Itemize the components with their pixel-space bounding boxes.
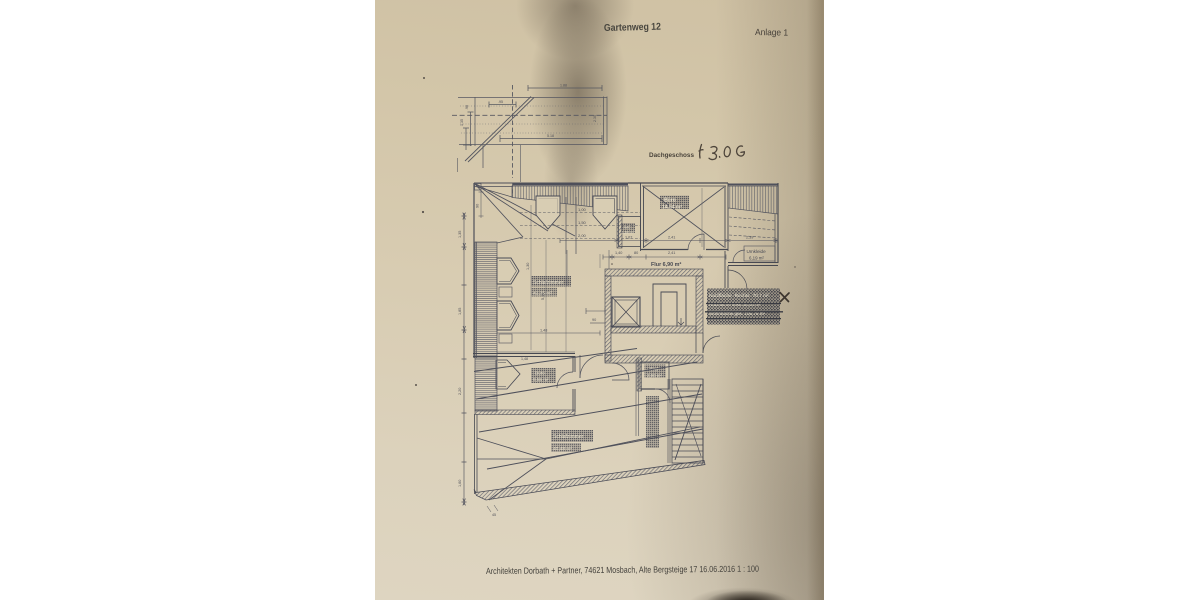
svg-text:Umkleide: Umkleide <box>747 249 767 254</box>
svg-text:5,11: 5,11 <box>541 293 545 300</box>
svg-text:Gartenweg 12: Gartenweg 12 <box>604 22 662 34</box>
svg-text:40,48 m²: 40,48 m² <box>553 446 572 452</box>
svg-text:Nutzfläche links 35,05 m²: Nutzfläche links 35,05 m² <box>709 302 761 307</box>
svg-text:.98: .98 <box>465 105 469 110</box>
svg-text:1.35: 1.35 <box>460 119 464 126</box>
svg-text:1,07: 1,07 <box>625 236 632 240</box>
svg-text:Büro: Büro <box>535 371 545 376</box>
svg-text:2,41: 2,41 <box>668 251 675 255</box>
svg-text:1,48: 1,48 <box>540 329 547 333</box>
svg-text:2,00: 2,00 <box>578 233 587 238</box>
svg-text:1,50: 1,50 <box>578 220 587 225</box>
svg-text:1,35: 1,35 <box>458 231 462 238</box>
svg-text:Dachgeschoss: Dachgeschoss <box>649 152 694 159</box>
svg-text:80: 80 <box>634 251 638 255</box>
svg-text:6,19 m²: 6,19 m² <box>749 256 764 261</box>
svg-text:1,40: 1,40 <box>615 251 622 255</box>
svg-text:Flur 6,90 m²: Flur 6,90 m² <box>651 262 681 268</box>
svg-text:Architekten Dorbath + Partner,: Architekten Dorbath + Partner, 74621 Mos… <box>486 564 759 576</box>
svg-text:.95: .95 <box>498 100 503 104</box>
svg-text:WC: WC <box>624 225 631 230</box>
svg-text:5.18: 5.18 <box>547 134 554 138</box>
svg-text:1,30: 1,30 <box>526 263 530 270</box>
svg-text:1,85: 1,85 <box>458 308 462 315</box>
svg-text:Schlafzimmer: Schlafzimmer <box>553 434 584 440</box>
svg-text:Büro: Büro <box>664 198 676 204</box>
svg-text:2,39: 2,39 <box>746 236 753 240</box>
svg-text:45: 45 <box>492 513 496 517</box>
svg-text:1.88: 1.88 <box>560 84 567 88</box>
svg-text:2,41: 2,41 <box>668 236 675 240</box>
svg-text:1,60 m²: 1,60 m² <box>622 231 636 235</box>
svg-text:1,00: 1,00 <box>578 207 587 212</box>
svg-text:14,54 m²: 14,54 m² <box>662 204 682 210</box>
svg-text:9,55 m²: 9,55 m² <box>533 377 549 382</box>
svg-text:1,60: 1,60 <box>458 480 462 487</box>
svg-text:2,20: 2,20 <box>458 388 462 395</box>
svg-text:90: 90 <box>592 318 596 322</box>
svg-text:Anlage 1: Anlage 1 <box>755 27 788 38</box>
svg-text:Nutzfläche ·Rechts· 70,7 m²: Nutzfläche ·Rechts· 70,7 m² <box>709 293 769 299</box>
svg-text:2,90 m²: 2,90 m² <box>647 373 662 378</box>
svg-text:90: 90 <box>476 204 480 208</box>
svg-text:1,48: 1,48 <box>521 357 528 361</box>
svg-text:2.30: 2.30 <box>593 115 597 122</box>
svg-text:Schlafzimmer: Schlafzimmer <box>533 280 564 286</box>
